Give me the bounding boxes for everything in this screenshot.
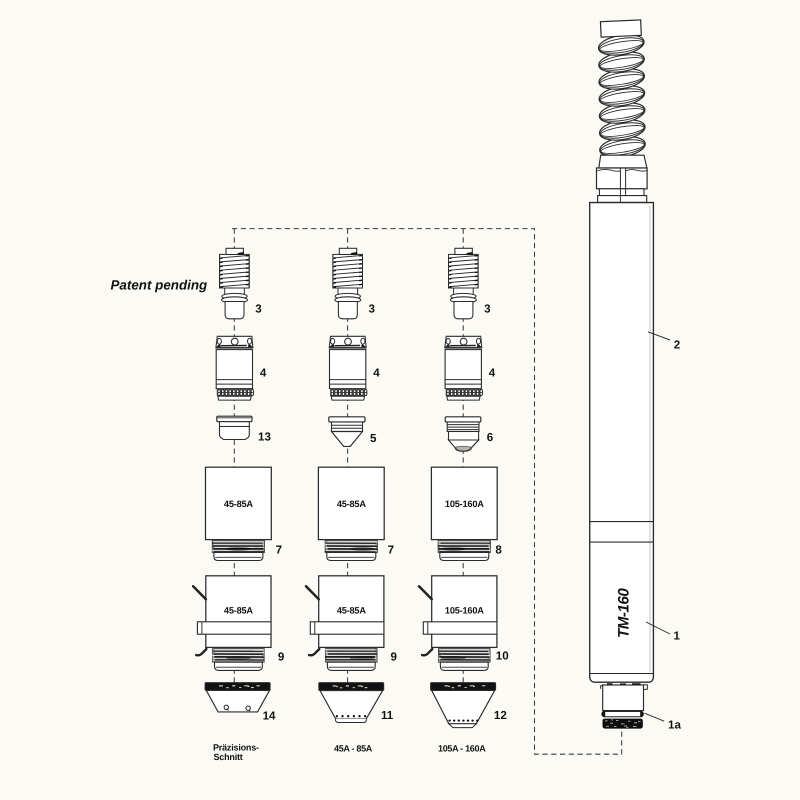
svg-text:105-160A: 105-160A bbox=[445, 499, 484, 509]
svg-text:45-85A: 45-85A bbox=[224, 499, 253, 509]
svg-text:4: 4 bbox=[373, 367, 380, 380]
svg-text:10: 10 bbox=[496, 650, 509, 663]
svg-text:45-85A: 45-85A bbox=[337, 499, 366, 509]
svg-text:45-85A: 45-85A bbox=[337, 606, 366, 616]
svg-text:3: 3 bbox=[255, 302, 262, 315]
svg-text:3: 3 bbox=[484, 302, 491, 315]
svg-text:105-160A: 105-160A bbox=[445, 606, 484, 616]
svg-text:Patent pending: Patent pending bbox=[111, 277, 208, 292]
svg-text:1a: 1a bbox=[668, 719, 681, 732]
svg-text:105A - 160A: 105A - 160A bbox=[438, 743, 486, 753]
svg-text:4: 4 bbox=[260, 367, 267, 380]
svg-text:14: 14 bbox=[263, 709, 276, 722]
svg-text:12: 12 bbox=[494, 709, 507, 722]
svg-text:3: 3 bbox=[369, 302, 376, 315]
svg-text:4: 4 bbox=[489, 367, 496, 380]
svg-text:6: 6 bbox=[487, 431, 494, 444]
svg-text:45-85A: 45-85A bbox=[224, 606, 253, 616]
svg-text:9: 9 bbox=[278, 650, 285, 663]
svg-text:13: 13 bbox=[258, 431, 271, 444]
svg-text:8: 8 bbox=[495, 543, 502, 556]
svg-text:2: 2 bbox=[674, 338, 680, 351]
svg-text:7: 7 bbox=[276, 543, 282, 556]
svg-text:9: 9 bbox=[391, 650, 398, 663]
svg-text:Schnitt: Schnitt bbox=[214, 752, 243, 762]
svg-text:45A - 85A: 45A - 85A bbox=[334, 743, 373, 753]
svg-text:11: 11 bbox=[381, 709, 394, 722]
svg-text:7: 7 bbox=[388, 543, 394, 556]
svg-text:5: 5 bbox=[370, 432, 377, 445]
svg-text:1: 1 bbox=[674, 630, 681, 643]
svg-text:TM-160: TM-160 bbox=[616, 588, 633, 638]
